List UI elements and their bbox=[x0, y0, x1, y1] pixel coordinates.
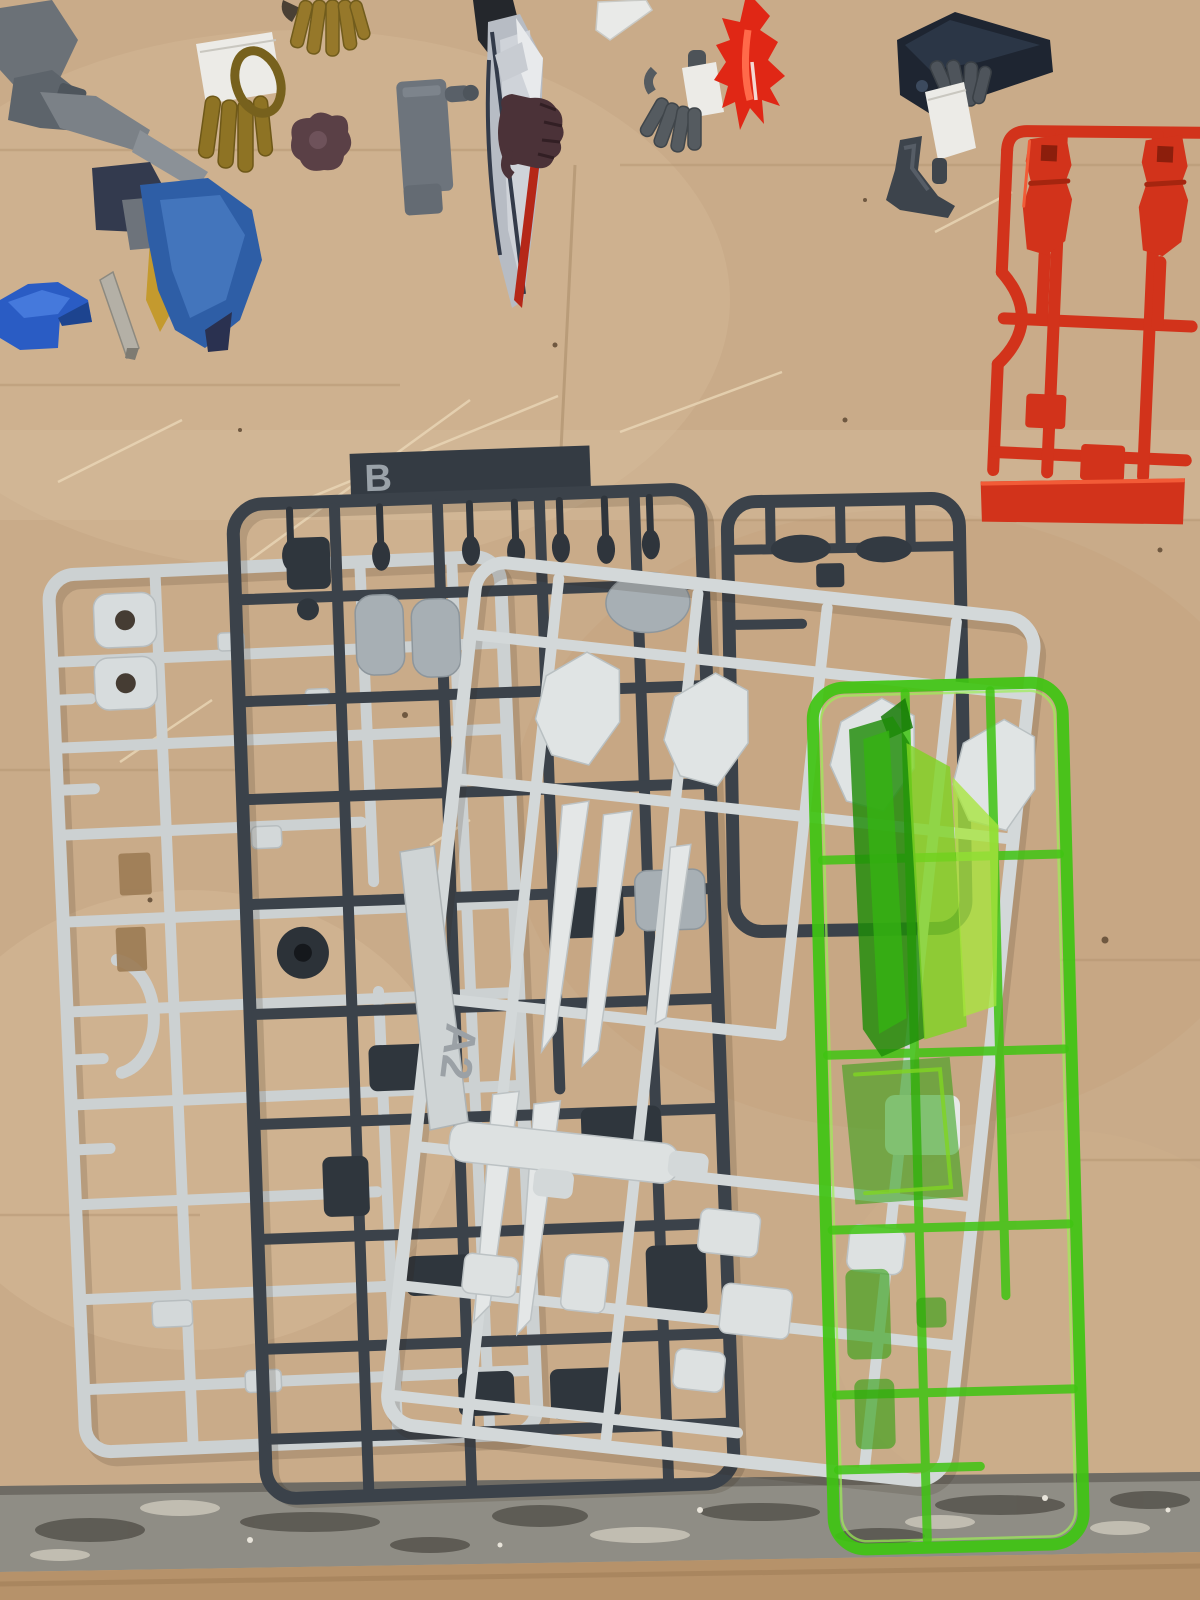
sprue-a2-label: A2 bbox=[430, 1021, 485, 1083]
workbench-photo: B bbox=[0, 0, 1200, 1600]
photo-canvas: B bbox=[0, 0, 1200, 1600]
